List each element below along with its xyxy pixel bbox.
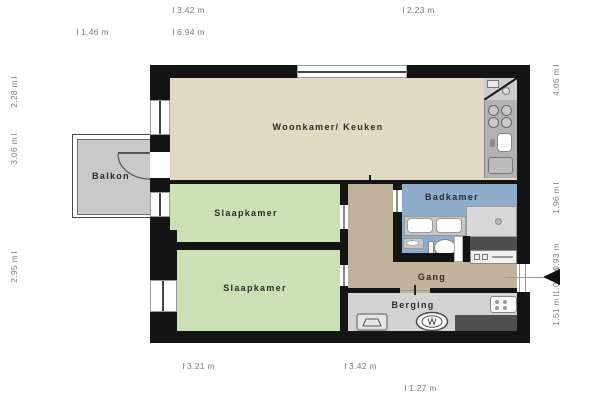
wall-niche-west: [463, 236, 470, 262]
dimension-right-5: 1.51 m: [551, 295, 561, 343]
room-label-hallway: Gang: [418, 272, 446, 282]
window-left-2: [150, 192, 170, 217]
door-bedroom-2: [340, 265, 348, 286]
dimension-top-3: 1.46 m: [77, 27, 150, 37]
entrance-arrow-icon: [543, 269, 560, 285]
dimension-label: 3.06 m: [9, 134, 19, 168]
room-label-living: Woonkamer/ Keuken: [273, 122, 384, 132]
hood-fan-icon: [502, 87, 510, 95]
dimension-right-1: 4.06 m: [551, 65, 561, 183]
dimension-label: 3.42 m: [173, 5, 209, 15]
door-storage-opening: [400, 288, 430, 293]
door-bedroom-1: [340, 205, 348, 229]
room-label-bathroom: Badkamer: [425, 192, 479, 202]
dimension-label: 1.27 m: [405, 383, 441, 393]
washing-machine-icon: [415, 311, 449, 332]
dimension-label: 2.95 m: [9, 252, 19, 286]
window-top: [297, 65, 407, 78]
counter-appliance-icon: [488, 157, 513, 174]
room-hallway-corridor: [348, 184, 393, 293]
wall-right: [517, 65, 530, 343]
dimension-top-2: 2.23 m: [403, 5, 517, 15]
window-left-3: [150, 280, 177, 312]
floorplan-canvas: 3.42 m 2.23 m 1.46 m 6.94 m 2.28 m 3.06 …: [0, 0, 600, 400]
door-bathroom: [393, 190, 402, 212]
microwave-icon: [487, 80, 499, 88]
dimension-label: 2.28 m: [9, 77, 19, 111]
niche-counter: [470, 237, 517, 250]
window-left-1: [150, 100, 170, 135]
washbasin-icon: [403, 238, 424, 249]
dimension-label: 1.96 m: [551, 183, 561, 217]
wall-bathroom-south: [393, 253, 455, 262]
boiler-icon: [490, 296, 517, 313]
dimension-bottom-2: 3.42 m: [345, 361, 517, 371]
wall-bottom: [150, 331, 530, 343]
room-label-storage: Berging: [391, 300, 434, 310]
dimension-label: 2.23 m: [403, 5, 439, 15]
dimension-right-2: 1.96 m: [551, 183, 561, 240]
washer-front-icon: [470, 250, 517, 264]
stove-icon: [487, 104, 514, 129]
room-label-balcony: Balkon: [92, 171, 130, 181]
wall-bedroom-divider: [177, 242, 340, 250]
dimension-top-1: 3.42 m: [173, 5, 343, 15]
entrance-door: [517, 264, 530, 292]
dimension-label: 3.42 m: [345, 361, 381, 371]
storage-counter: [455, 315, 517, 331]
balcony-door-opening: [150, 152, 170, 178]
vanity-double-sink-icon: [404, 216, 466, 236]
dimension-label: 6.94 m: [173, 27, 209, 37]
kitchen-sink-icon: [487, 133, 514, 153]
dimension-left-1: 2.28 m: [9, 77, 19, 134]
dimension-left-3: 2.95 m: [9, 252, 19, 330]
dimension-right-3: 0.93 m: [551, 240, 561, 264]
room-label-bedroom-2: Slaapkamer: [223, 283, 287, 293]
dimension-bottom-1: 3.21 m: [183, 361, 343, 371]
passage-tick: [369, 175, 371, 184]
wall-bedrooms-east: [340, 180, 348, 331]
entrance-leader-line: [505, 277, 543, 278]
dimension-left-2: 3.06 m: [9, 134, 19, 218]
dimension-label: 4.06 m: [551, 65, 561, 99]
shower-icon: [466, 206, 517, 237]
doormat-icon: [356, 313, 388, 331]
dimension-label: 1.46 m: [77, 27, 113, 37]
dimension-label: 1.51 m: [551, 295, 561, 329]
room-label-bedroom-1: Slaapkamer: [214, 208, 278, 218]
dimension-bottom-3: 1.27 m: [405, 383, 467, 393]
dimension-top-4: 6.94 m: [173, 27, 517, 37]
door-bathroom-inner-leaf: [454, 236, 463, 262]
dimension-label: 3.21 m: [183, 361, 219, 371]
